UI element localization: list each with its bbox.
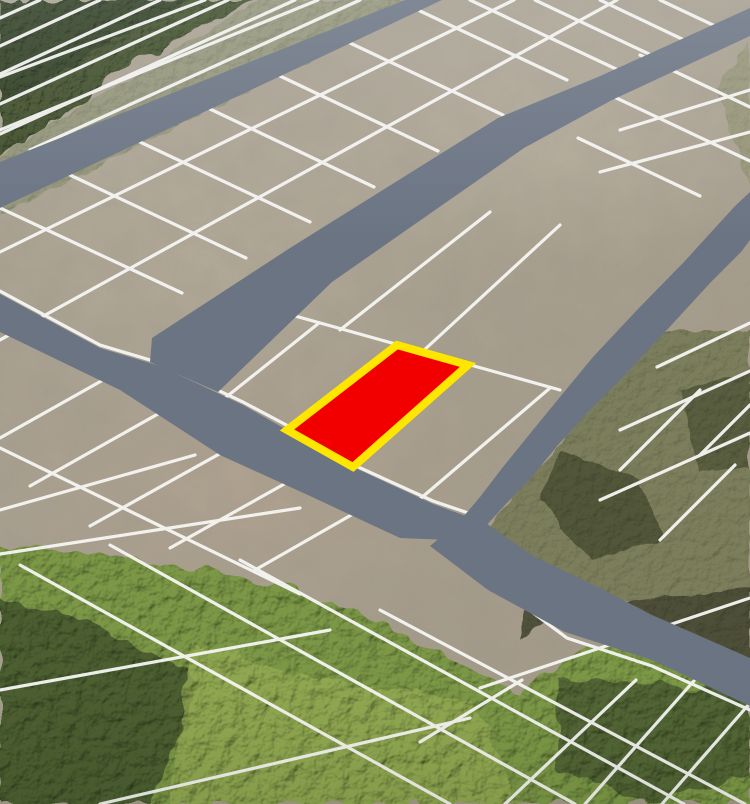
atmosphere-haze	[0, 0, 750, 804]
aerial-photo-stage	[0, 0, 750, 804]
aerial-plot-map	[0, 0, 750, 804]
